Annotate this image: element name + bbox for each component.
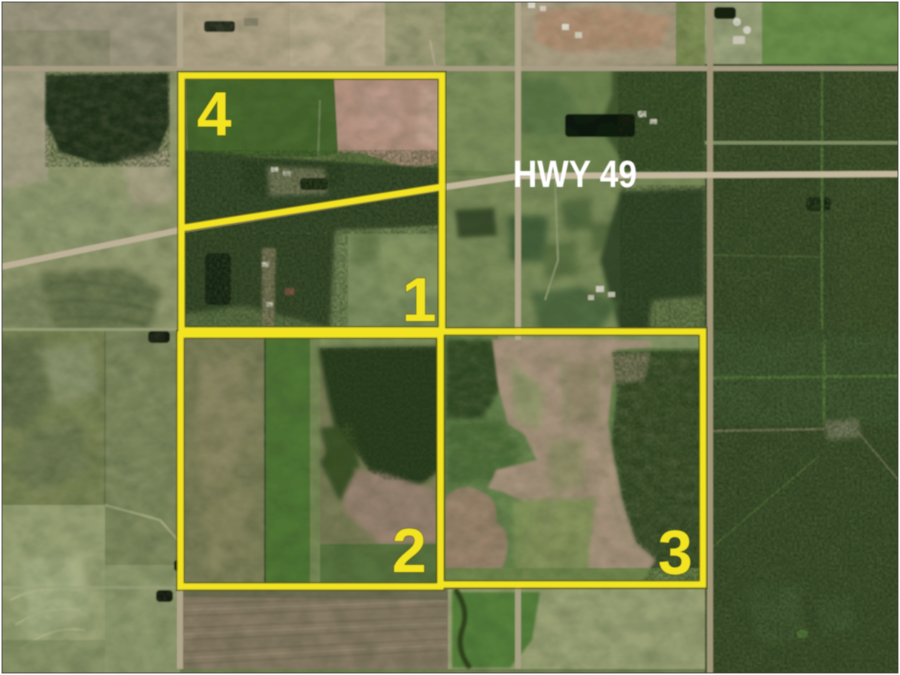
svg-text:2: 2	[392, 517, 426, 586]
svg-text:4: 4	[197, 80, 232, 149]
svg-text:1: 1	[402, 266, 436, 335]
svg-text:3: 3	[658, 519, 692, 588]
svg-text:HWY 49: HWY 49	[513, 154, 637, 196]
